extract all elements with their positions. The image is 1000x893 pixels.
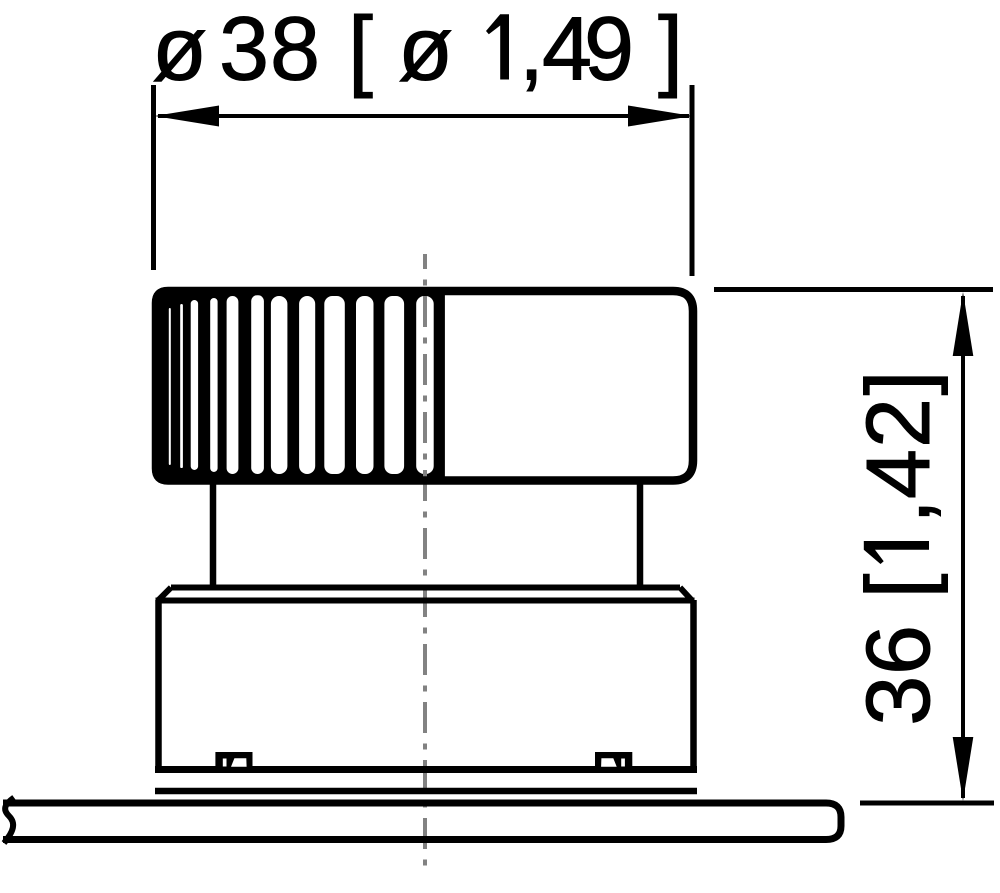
svg-text:ø38[ø,49]: ø38[ø,49]: [152, 0, 683, 100]
